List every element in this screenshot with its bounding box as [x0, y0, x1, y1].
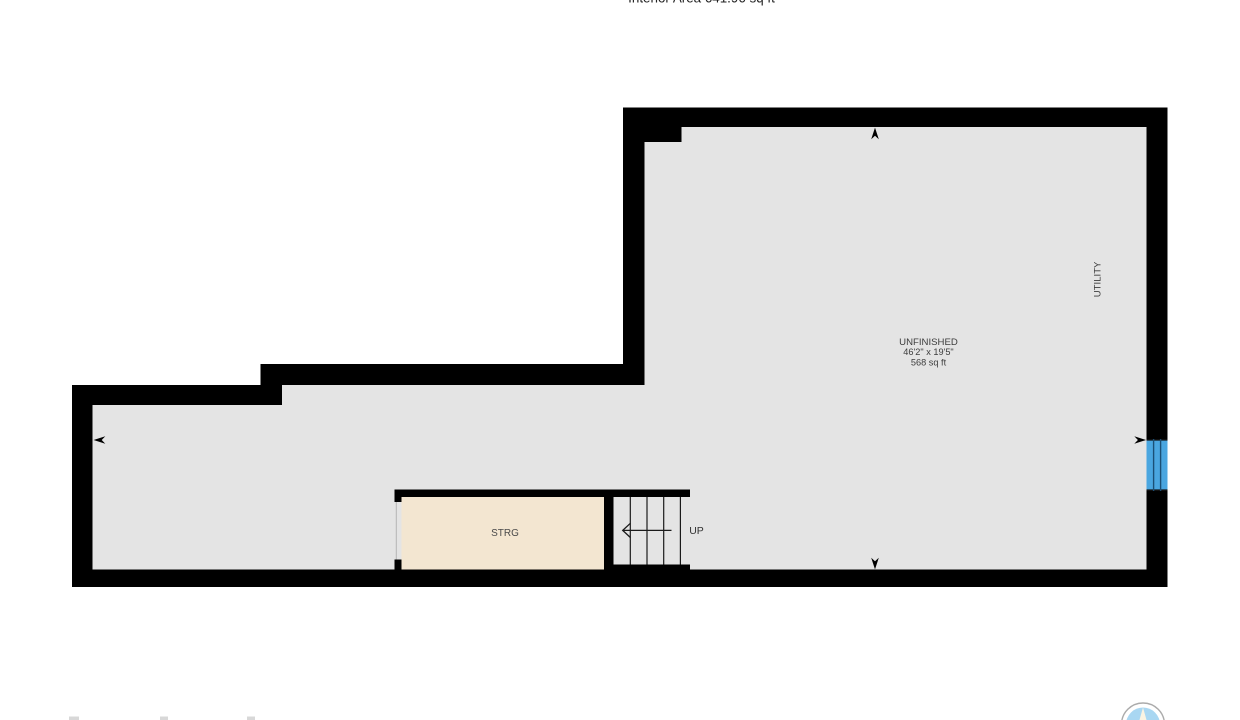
svg-text:UTILITY: UTILITY	[1093, 261, 1104, 297]
svg-text:STRG: STRG	[491, 528, 519, 539]
svg-text:46'2" x 19'5": 46'2" x 19'5"	[903, 347, 953, 357]
svg-text:UP: UP	[689, 525, 704, 537]
svg-text:568 sq ft: 568 sq ft	[911, 357, 947, 367]
svg-text:Interior Area 641.96 sq ft: Interior Area 641.96 sq ft	[628, 0, 775, 6]
